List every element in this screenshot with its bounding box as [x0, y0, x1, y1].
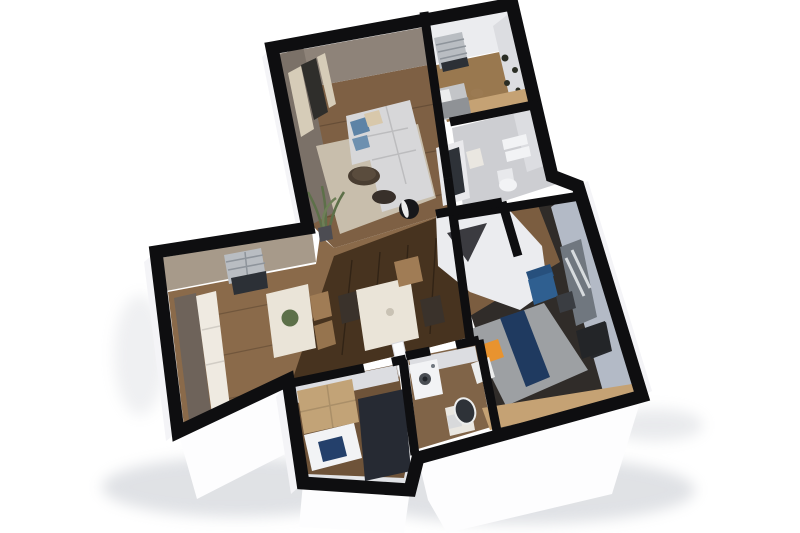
wall-laundry-north-a	[406, 351, 430, 356]
bedroom-top-stool	[471, 89, 484, 98]
toilet-bowl	[499, 179, 517, 192]
floorplan-3d-render	[0, 0, 800, 533]
floorplan-canvas	[0, 0, 800, 533]
small-wardrobe-dark	[358, 389, 411, 481]
washer-dial	[431, 364, 435, 368]
dining-chair-1	[310, 291, 332, 321]
plant-pot	[318, 225, 333, 242]
washer-door-inner	[423, 377, 428, 382]
table-plant	[282, 310, 299, 327]
dining-chair-3	[338, 291, 360, 324]
coffee-table-small	[372, 190, 396, 204]
coffee-table-large-top	[352, 167, 376, 181]
table2-vase	[386, 308, 394, 316]
